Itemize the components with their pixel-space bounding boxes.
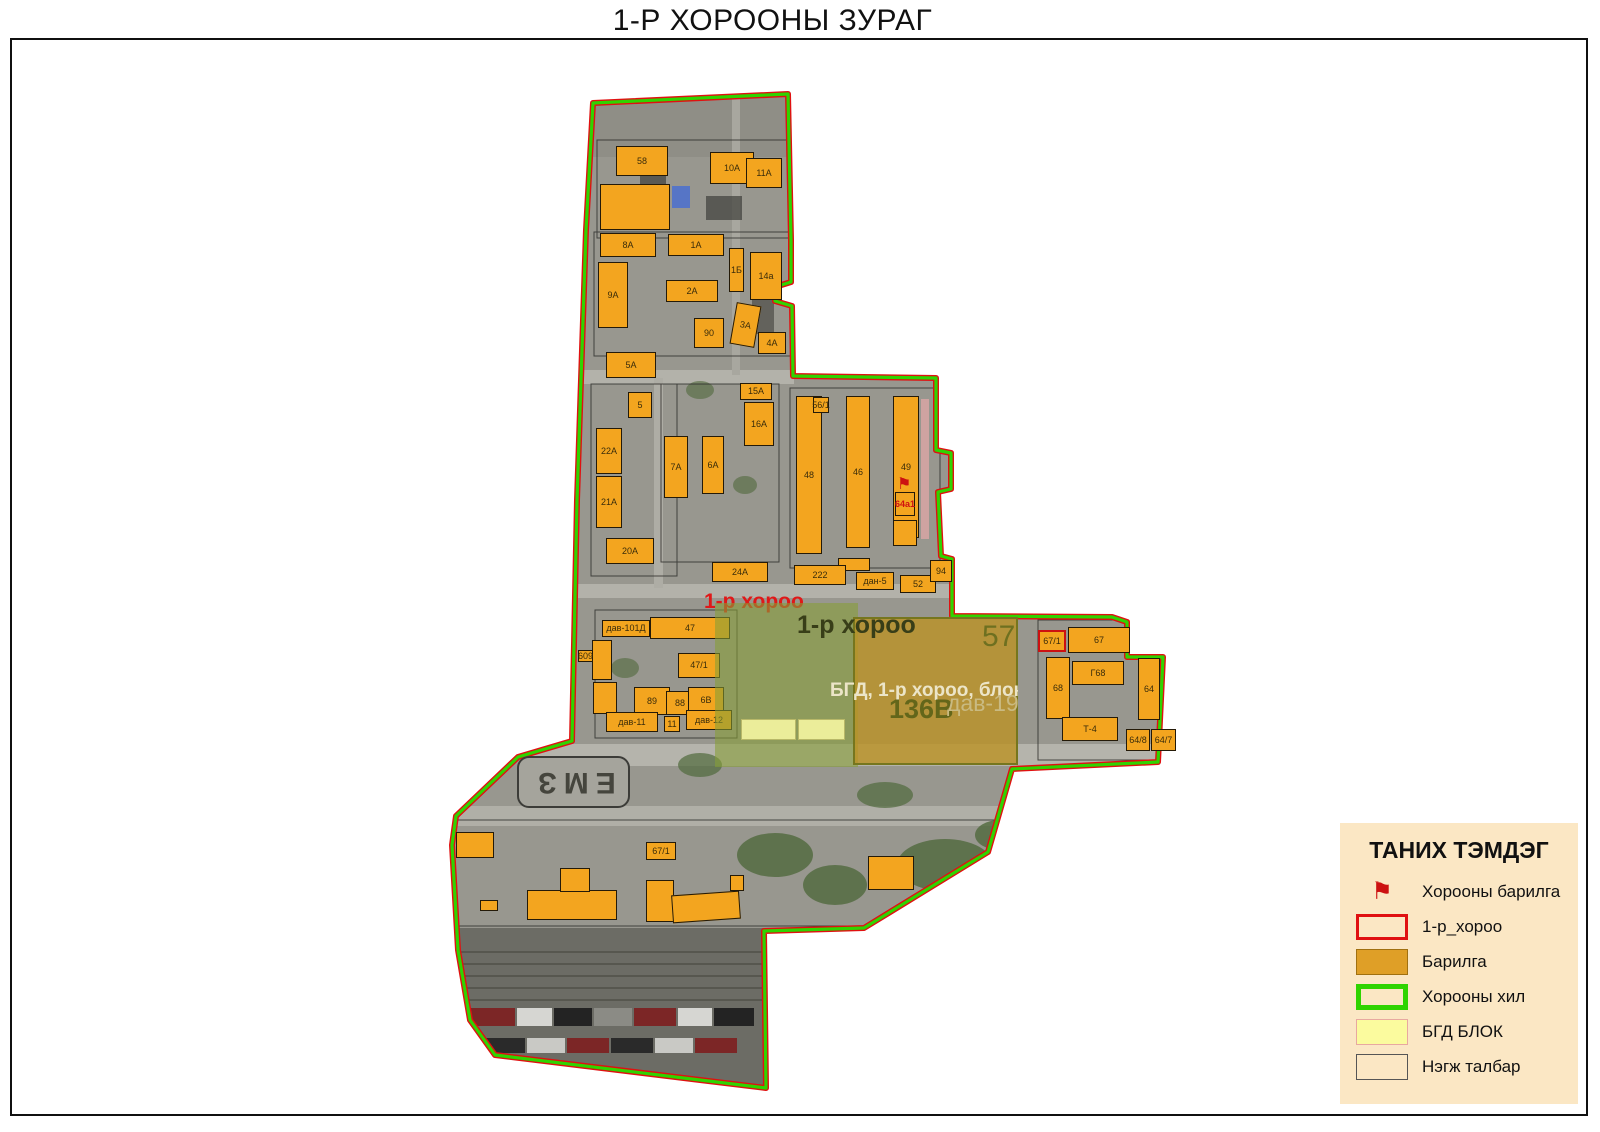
bgd-block-swatch (1356, 1019, 1408, 1045)
building-polygon: 11A (746, 158, 782, 188)
building-label: 11 (667, 720, 676, 729)
building-label: 64/8 (1129, 736, 1147, 745)
building-polygon: 48 (796, 396, 822, 554)
building-label: 46 (853, 468, 863, 477)
legend-item-label: Нэгж талбар (1422, 1057, 1520, 1077)
building-label: 52 (913, 580, 923, 589)
building-label: 8A (622, 241, 633, 250)
map-sheet: 1-Р ХОРООНЫ ЗУРАГ (0, 0, 1600, 1132)
building-polygon: 46 (846, 396, 870, 548)
building-polygon (593, 682, 617, 714)
legend-item-1: 1-р_хороо (1340, 909, 1578, 944)
building-label: 47 (685, 624, 695, 633)
khoroo-building-flag-icon: ⚑ (897, 477, 911, 493)
building-polygon (868, 856, 914, 890)
building-polygon: 64/7 (1151, 729, 1176, 751)
building-polygon: 16A (744, 402, 774, 446)
building-polygon: 14a (750, 252, 782, 300)
parcel-57-label: 57 (982, 620, 1015, 653)
building-label: 67/1 (1043, 637, 1061, 646)
building-label: Т-4 (1083, 725, 1097, 734)
building-polygon: 6A (702, 436, 724, 494)
khoroo-border-swatch (1356, 984, 1408, 1010)
dav-19-label: дав-19 (947, 691, 1018, 716)
green-overlay-label: 1-р хороо (797, 612, 916, 640)
building-polygon: 5 (628, 392, 652, 418)
building-label: 89 (647, 697, 657, 706)
building-label: 6A (707, 461, 718, 470)
building-polygon: 94 (930, 560, 952, 582)
building-label: 16A (751, 420, 767, 429)
building-label: Г68 (1091, 669, 1106, 678)
page-title: 1-Р ХОРООНЫ ЗУРАГ (0, 4, 1545, 38)
ground-marking-text: ЕМЗ (531, 765, 616, 799)
building-polygon: 68 (1046, 657, 1070, 719)
building-label: 90 (704, 329, 714, 338)
legend-item-label: БГД БЛОК (1422, 1022, 1503, 1042)
building-label: 7A (670, 463, 681, 472)
building-label: 2A (686, 287, 697, 296)
khoroo-outline-swatch (1356, 914, 1408, 940)
building-polygon: дав-101Д (602, 620, 650, 637)
building-label: 94 (936, 567, 946, 576)
building-polygon: 609 (578, 650, 593, 662)
legend-item-label: Хорооны барилга (1422, 882, 1560, 902)
building-label: дав-101Д (606, 624, 645, 633)
building-label: 67/1 (652, 847, 670, 856)
building-label: 21A (601, 498, 617, 507)
building-polygon (646, 880, 674, 922)
building-label: 49 (901, 463, 911, 472)
building-polygon: 47/1 (678, 653, 720, 678)
building-polygon: 9A (598, 262, 628, 328)
building-polygon (480, 900, 498, 911)
legend-item-3: Хорооны хил (1340, 979, 1578, 1014)
building-polygon: 64 (1138, 658, 1160, 720)
legend-item-4: БГД БЛОК (1340, 1014, 1578, 1049)
building-polygon: 1A (668, 234, 724, 256)
bgd-block-polygon (798, 719, 845, 740)
building-polygon: 4A (758, 332, 786, 354)
building-label: 609 (578, 652, 593, 661)
building-polygon: 8A (600, 233, 656, 257)
building-label: 11A (756, 169, 771, 178)
building-label: 24A (732, 568, 748, 577)
building-polygon: 67 (1068, 627, 1130, 653)
building-label: 4A (766, 339, 777, 348)
building-swatch (1356, 949, 1408, 975)
building-label: дан-5 (863, 577, 886, 586)
building-polygon: 11 (664, 716, 680, 732)
building-polygon: 49 (893, 396, 919, 538)
building-polygon: 222 (794, 565, 846, 585)
building-polygon: Т-4 (1062, 717, 1118, 741)
legend-item-0: ⚑Хорооны барилга (1340, 874, 1578, 909)
building-polygon: 24A (712, 562, 768, 582)
building-polygon: 5A (606, 352, 656, 378)
building-polygon: 1Б (729, 248, 744, 292)
building-label: 5 (637, 401, 642, 410)
building-label: 64 (1144, 685, 1154, 694)
building-polygon: 67/1 (646, 842, 676, 860)
building-label: 1A (690, 241, 701, 250)
building-polygon: 7A (664, 436, 688, 498)
building-polygon (527, 890, 617, 920)
building-polygon: Г68 (1072, 661, 1124, 685)
building-polygon (560, 868, 590, 892)
building-polygon: 22A (596, 428, 622, 474)
building-label: 9A (607, 291, 618, 300)
building-polygon: 2A (666, 280, 718, 302)
building-polygon: 21A (596, 476, 622, 528)
building-polygon (600, 184, 670, 230)
building-label: 64а1 (895, 500, 915, 509)
building-label: 47/1 (690, 661, 708, 670)
building-polygon: 15A (740, 383, 772, 400)
legend-item-label: 1-р_хороо (1422, 917, 1502, 937)
building-label: 64/7 (1155, 736, 1173, 745)
building-label: 68 (1053, 684, 1063, 693)
building-polygon: 58 (616, 146, 668, 176)
building-polygon (893, 520, 917, 546)
building-label: 10A (724, 164, 740, 173)
bgd-block-polygon (741, 719, 796, 740)
building-polygon (592, 640, 612, 680)
ground-marking-pad: ЕМЗ (517, 756, 630, 808)
building-label: 5A (625, 361, 636, 370)
legend-item-label: Хорооны хил (1422, 987, 1525, 1007)
building-polygon (456, 832, 494, 858)
legend-title: ТАНИХ ТЭМДЭГ (1340, 837, 1578, 864)
building-polygon: 64а1⚑ (895, 492, 915, 516)
building-polygon: 67/1 (1038, 630, 1066, 652)
building-polygon: 90 (694, 318, 724, 348)
building-label: 222 (812, 571, 827, 580)
building-label: 22A (601, 447, 617, 456)
building-polygon: дан-5 (856, 572, 894, 590)
legend-item-2: Барилга (1340, 944, 1578, 979)
building-polygon: 20A (606, 538, 654, 564)
building-polygon: дав-11 (606, 712, 658, 732)
building-label: 67 (1094, 636, 1104, 645)
legend-box: ТАНИХ ТЭМДЭГ ⚑Хорооны барилга1-р_хорооБа… (1340, 823, 1578, 1104)
building-polygon (671, 891, 741, 924)
parcel-swatch (1356, 1054, 1408, 1080)
flag-icon: ⚑ (1356, 879, 1408, 905)
building-label: 6В (700, 696, 711, 705)
parcel-136v-label: 136В (889, 695, 954, 725)
building-polygon (730, 875, 744, 891)
building-label: 20A (622, 547, 638, 556)
legend-items: ⚑Хорооны барилга1-р_хорооБарилгаХорооны … (1340, 874, 1578, 1084)
building-polygon: 64/8 (1126, 729, 1150, 751)
building-label: 56/1 (812, 401, 830, 410)
legend-item-label: Барилга (1422, 952, 1487, 972)
building-polygon: 89 (634, 687, 670, 715)
building-label: 58 (637, 157, 647, 166)
building-label: дав-11 (618, 718, 645, 727)
building-label: 3A (739, 320, 751, 331)
building-label: 15A (748, 387, 764, 396)
building-label: 14a (758, 272, 773, 281)
legend-item-5: Нэгж талбар (1340, 1049, 1578, 1084)
building-label: 1Б (731, 266, 742, 275)
building-polygon: 56/1 (813, 397, 829, 413)
building-label: 48 (804, 471, 814, 480)
building-label: 88 (675, 699, 685, 708)
